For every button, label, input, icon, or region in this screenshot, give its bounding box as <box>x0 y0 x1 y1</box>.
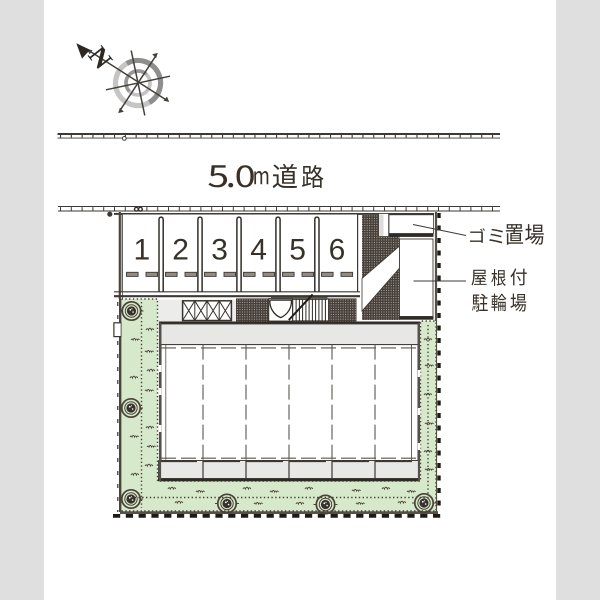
svg-text:6: 6 <box>329 234 346 267</box>
svg-text:3: 3 <box>211 234 228 267</box>
svg-text:4: 4 <box>250 234 267 267</box>
svg-text:5: 5 <box>289 234 306 267</box>
svg-text:1: 1 <box>133 234 150 267</box>
svg-text:2: 2 <box>172 234 189 267</box>
